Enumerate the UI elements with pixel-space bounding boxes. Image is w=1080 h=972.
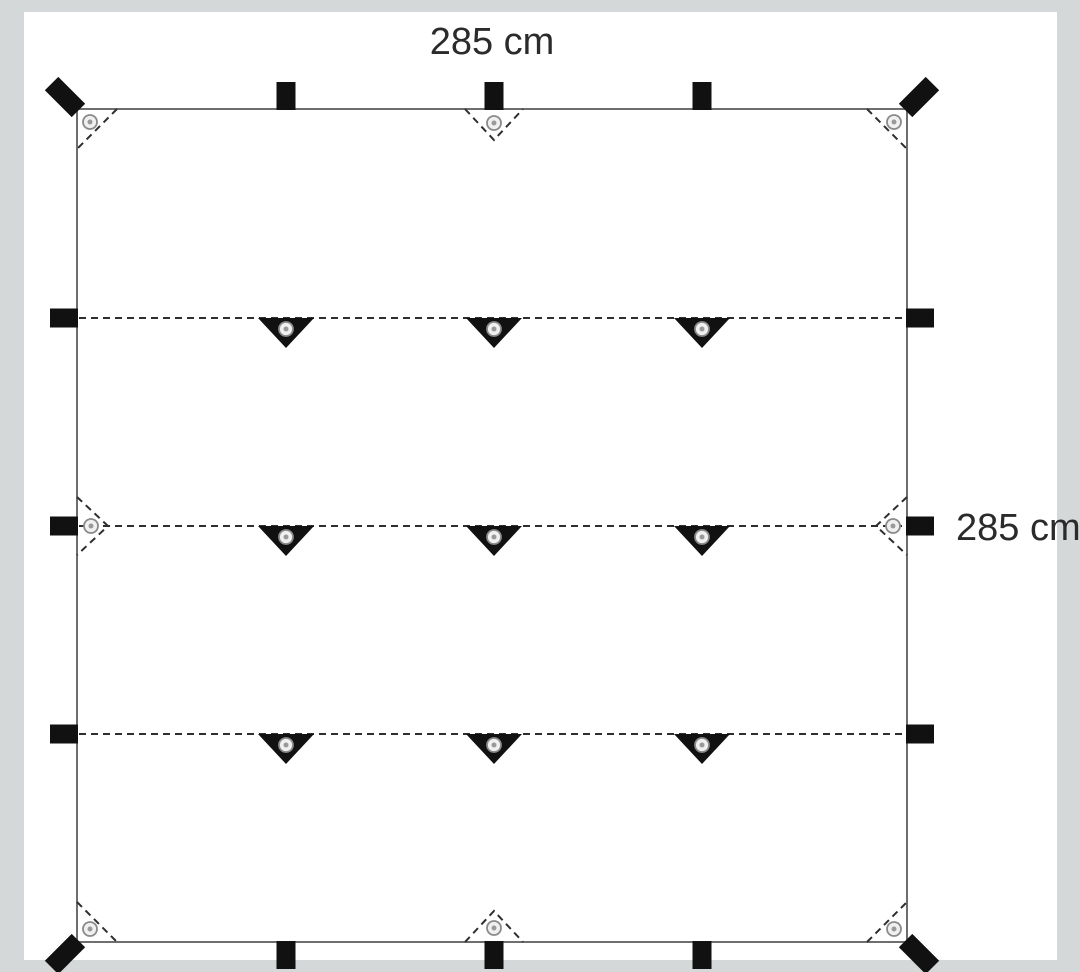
diagram-canvas: 285 cm 285 cm	[24, 12, 1057, 960]
corner-grommet-top-left-center	[88, 120, 93, 125]
attachment-grommet-center	[492, 743, 497, 748]
corner-grommet-bottom-left-center	[88, 927, 93, 932]
attachment-grommet-center	[284, 327, 289, 332]
edge-loop-top	[693, 82, 712, 110]
attachment-grommet-center	[492, 535, 497, 540]
edge-grommet-left-center	[89, 524, 94, 529]
attachment-grommet-center	[700, 743, 705, 748]
attachment-grommet-center	[284, 743, 289, 748]
edge-loop-left	[50, 309, 78, 328]
edge-loop-bottom	[277, 941, 296, 969]
edge-loop-left	[50, 517, 78, 536]
edge-loop-left	[50, 725, 78, 744]
dimension-label-width: 285 cm	[430, 22, 555, 62]
edge-grommet-right-center	[891, 524, 896, 529]
edge-loop-right	[906, 309, 934, 328]
edge-loop-top	[485, 82, 504, 110]
corner-grommet-bottom-right-center	[892, 927, 897, 932]
edge-loop-right	[906, 725, 934, 744]
dimension-label-height: 285 cm	[956, 508, 1080, 548]
edge-loop-top	[277, 82, 296, 110]
edge-loop-bottom	[485, 941, 504, 969]
edge-grommet-top-center	[492, 121, 497, 126]
attachment-grommet-center	[700, 535, 705, 540]
attachment-grommet-center	[700, 327, 705, 332]
edge-loop-right	[906, 517, 934, 536]
attachment-grommet-center	[492, 327, 497, 332]
edge-loop-bottom	[693, 941, 712, 969]
attachment-grommet-center	[284, 535, 289, 540]
edge-grommet-bottom-center	[492, 926, 497, 931]
tarp-diagram-svg	[24, 12, 1080, 972]
corner-grommet-top-right-center	[892, 120, 897, 125]
page-background: { "labels": { "width": "285 cm", "height…	[0, 0, 1080, 960]
